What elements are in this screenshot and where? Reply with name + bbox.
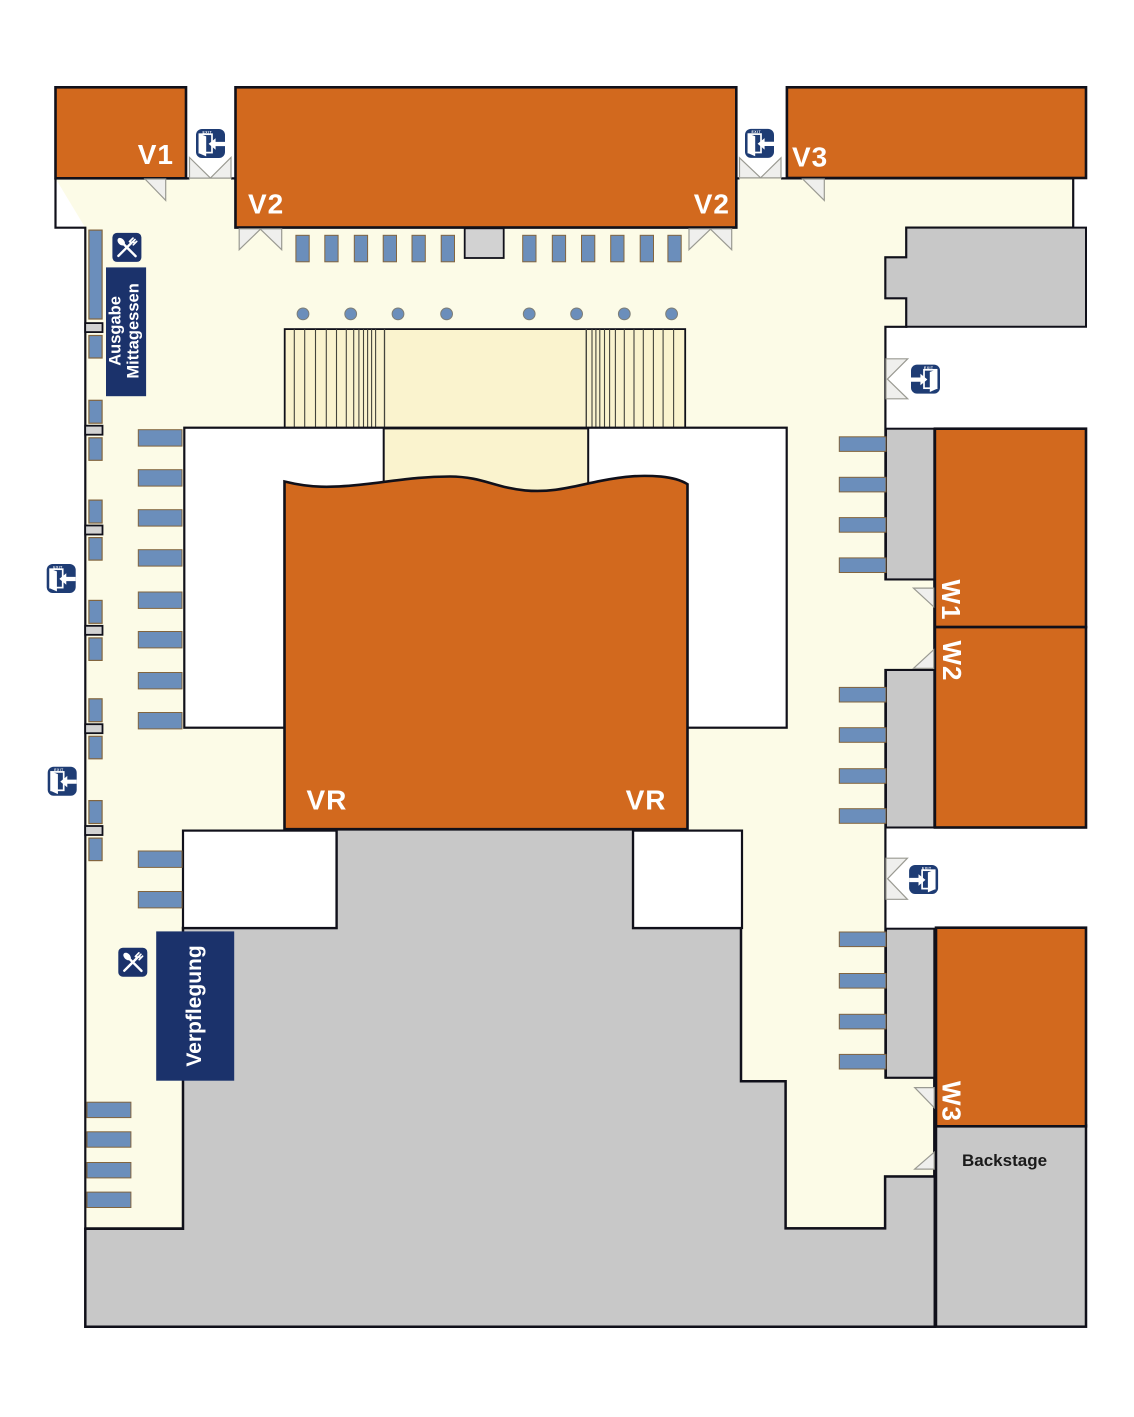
svg-text:VR: VR <box>626 784 667 815</box>
svg-text:EXIT: EXIT <box>922 866 932 870</box>
svg-text:EXIT: EXIT <box>752 130 762 134</box>
svg-text:Backstage: Backstage <box>962 1151 1047 1170</box>
svg-text:V2: V2 <box>248 189 284 220</box>
svg-text:Mittagessen: Mittagessen <box>125 283 143 378</box>
svg-text:EXIT: EXIT <box>924 366 934 370</box>
svg-text:Verpflegung: Verpflegung <box>183 945 206 1066</box>
svg-text:Ausgabe: Ausgabe <box>107 296 125 366</box>
svg-text:EXIT: EXIT <box>53 565 63 569</box>
svg-text:V1: V1 <box>138 139 174 170</box>
svg-text:W3: W3 <box>937 1081 967 1122</box>
svg-text:V2: V2 <box>694 189 730 220</box>
svg-text:VR: VR <box>307 784 348 815</box>
svg-text:EXIT: EXIT <box>54 768 64 772</box>
svg-text:EXIT: EXIT <box>203 130 213 134</box>
svg-text:W1: W1 <box>936 580 966 621</box>
svg-text:V3: V3 <box>792 142 828 173</box>
svg-text:W2: W2 <box>937 641 967 682</box>
